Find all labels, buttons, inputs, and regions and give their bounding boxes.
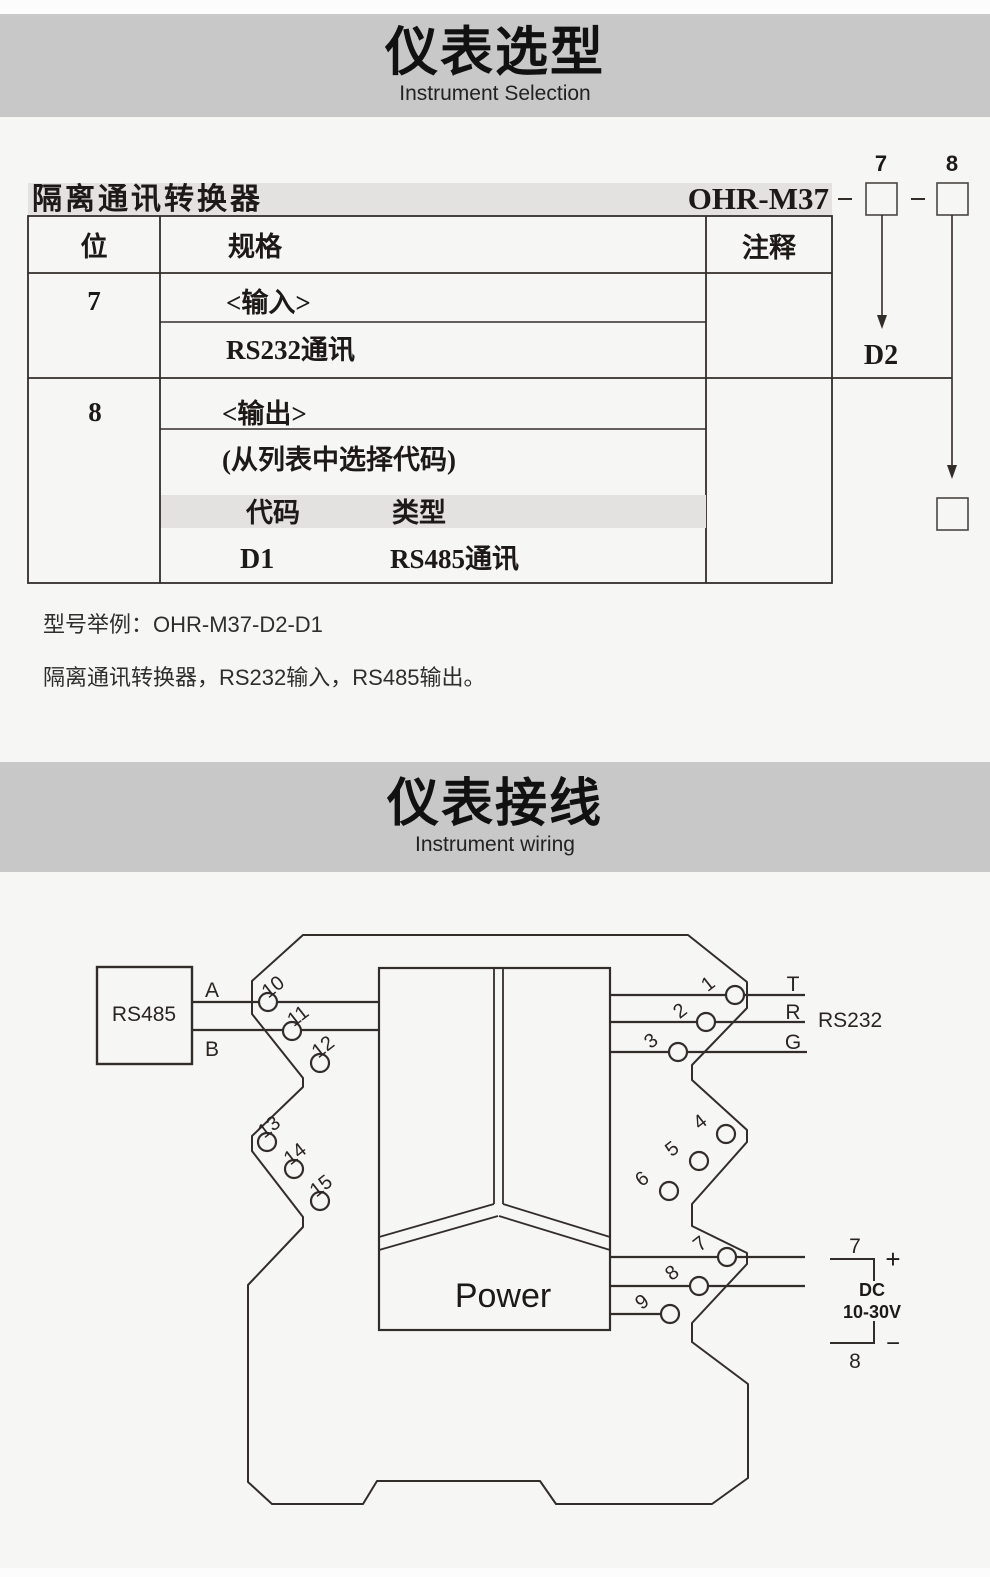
datasheet-page: 仪表选型 Instrument Selection 隔离通讯转换器 OHR-M3… [0, 0, 990, 1577]
dc-terminal8-label: 8 [849, 1350, 861, 1373]
digit8-label: 8 [946, 151, 958, 176]
rs232-device-label: RS232 [818, 1009, 882, 1032]
module-housing-outline [248, 935, 748, 1504]
dc-name-label: DC [859, 1280, 885, 1300]
isolation-barrier-right-lower [499, 1216, 610, 1250]
terminal-7-number: 7 [689, 1232, 711, 1256]
terminal-3-number: 3 [640, 1029, 662, 1053]
terminal-9 [661, 1305, 679, 1323]
isolation-barrier-left-lower [379, 1216, 498, 1250]
row8-position: 8 [88, 397, 102, 427]
terminal-6 [660, 1182, 678, 1200]
dc-minus-sign: − [886, 1330, 900, 1357]
dc-plus-sign: + [885, 1244, 900, 1274]
digit7-code: D2 [864, 340, 898, 371]
digit7-label: 7 [875, 151, 887, 176]
header-note: 注释 [742, 232, 797, 263]
row7-value: RS232通讯 [226, 335, 355, 365]
row8-code-value: D1 [240, 544, 274, 575]
wiring-diagram: RS485 A B Power [0, 880, 990, 1577]
terminal-15-number: 15 [306, 1171, 337, 1202]
section-subtitle-selection: Instrument Selection [399, 82, 590, 106]
wire-a-label: A [205, 979, 219, 1002]
dc-source-bracket [830, 1259, 874, 1343]
wire-r-label: R [785, 1001, 800, 1024]
terminal-14-number: 14 [280, 1139, 311, 1170]
model-prefix: OHR-M37 [688, 181, 829, 216]
terminal-5 [690, 1152, 708, 1170]
terminal-4-number: 4 [689, 1110, 711, 1134]
terminal-5-number: 5 [661, 1137, 683, 1161]
product-name: 隔离通讯转换器 [32, 183, 263, 216]
digit8-arrowhead [947, 465, 957, 479]
row8-code-header: 代码 [245, 498, 300, 528]
row8-type-value: RS485通讯 [390, 544, 519, 574]
section-header-wiring: 仪表接线 Instrument wiring [0, 762, 990, 872]
section-subtitle-wiring: Instrument wiring [415, 833, 575, 857]
digit8-empty-code-box [937, 498, 968, 530]
model-example-description: 隔离通讯转换器，RS232输入，RS485输出。 [43, 660, 486, 692]
digit7-arrowhead [877, 315, 887, 329]
dc-source-top-bracket [830, 1259, 874, 1281]
section-header-selection: 仪表选型 Instrument Selection [0, 14, 990, 117]
header-position: 位 [81, 231, 108, 262]
section-title-wiring: 仪表接线 [387, 777, 603, 832]
page-margin-top [0, 0, 990, 14]
wire-b-label: B [205, 1038, 219, 1061]
rs485-device-label: RS485 [112, 1003, 176, 1026]
dc-voltage-range: 10-30V [843, 1302, 901, 1322]
terminal-7 [718, 1248, 736, 1266]
code-box-digit8 [937, 183, 968, 215]
terminal-4 [717, 1125, 735, 1143]
terminal-1 [726, 986, 744, 1004]
wire-t-label: T [787, 973, 800, 996]
dc-source-bottom-bracket [830, 1321, 874, 1343]
terminal-1-number: 1 [697, 972, 719, 996]
terminal-2 [697, 1013, 715, 1031]
model-example-title: 型号举例：OHR-M37-D2-D1 [43, 607, 323, 639]
terminal-9-number: 9 [631, 1290, 653, 1314]
terminal-8-number: 8 [661, 1261, 683, 1285]
terminal-2-number: 2 [669, 999, 691, 1023]
header-spec: 规格 [228, 232, 283, 262]
terminal-6-number: 6 [631, 1167, 653, 1191]
row8-hint: (从列表中选择代码) [222, 445, 456, 475]
power-section-label: Power [455, 1277, 551, 1315]
row8-group: <输出> [222, 398, 307, 429]
terminal-8 [690, 1277, 708, 1295]
row8-type-header: 类型 [392, 498, 446, 528]
dc-terminal7-label: 7 [849, 1235, 861, 1258]
isolation-barrier-left-upper [379, 1204, 494, 1237]
code-box-digit7 [866, 183, 897, 215]
wire-g-label: G [785, 1031, 801, 1054]
row7-group: <输入> [226, 287, 311, 318]
terminal-3 [669, 1043, 687, 1061]
section-title-selection: 仪表选型 [385, 25, 605, 81]
isolation-barrier-right-upper [503, 1204, 610, 1237]
row7-position: 7 [87, 286, 101, 316]
